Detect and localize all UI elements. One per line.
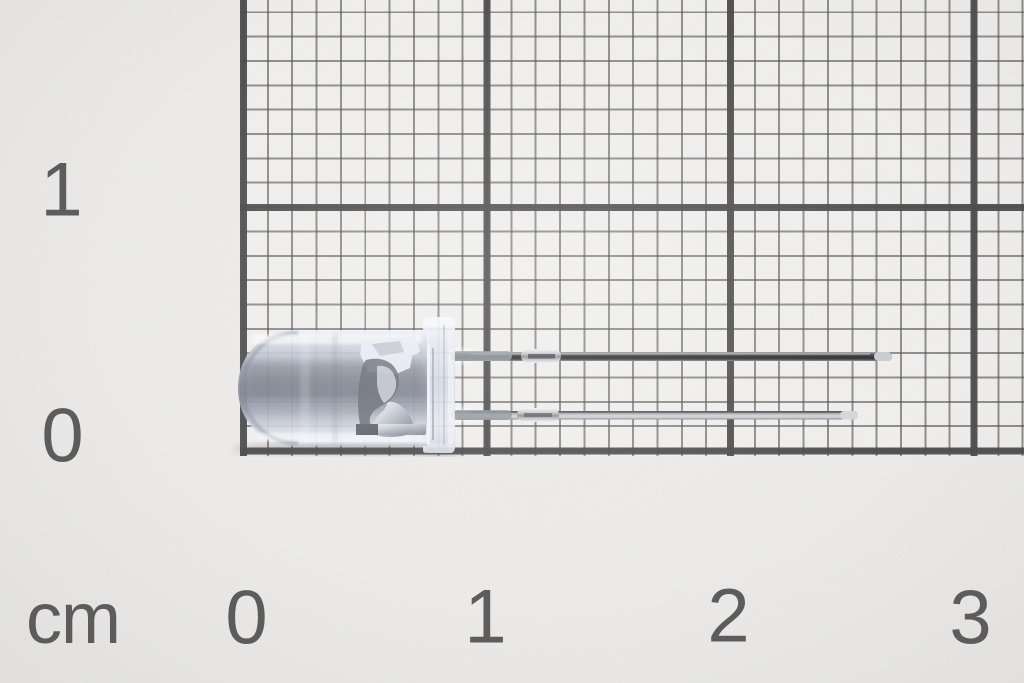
ruler-mark-2: 2 xyxy=(707,573,748,660)
ruler-mark-0: 0 xyxy=(225,575,266,662)
ruler-unit-label: cm xyxy=(26,578,120,660)
ruler-mark-3: 3 xyxy=(949,575,990,662)
ruler-mark-1: 1 xyxy=(464,574,505,661)
millimeter-grid xyxy=(240,0,1024,456)
ruler-left-mark-1: 1 xyxy=(40,147,81,234)
photo-canvas: cm 0 1 2 3 1 0 xyxy=(0,0,1024,683)
ruler-left-mark-0: 0 xyxy=(41,393,82,480)
